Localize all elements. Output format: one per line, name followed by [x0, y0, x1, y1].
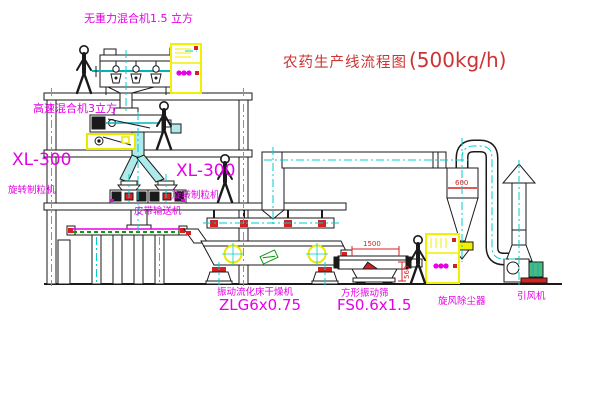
dim-sieve-length: 1500: [363, 241, 381, 248]
control-cabinet-right: [426, 234, 459, 283]
induced-draft-fan: [504, 259, 547, 283]
gravity-free-mixer: [92, 48, 183, 95]
fluid-bed-dryer: [201, 210, 355, 284]
belt-conveyor: [58, 226, 208, 284]
label-granulator-center-model: XL-300: [176, 163, 235, 180]
label-belt-conveyor: 皮带输送机: [134, 207, 182, 217]
label-high-speed-mixer: 高速混合机3立方: [33, 103, 117, 114]
label-cyclone: 旋风除尘器: [438, 297, 486, 307]
title-text: 农药生产线流程图: [283, 51, 407, 72]
label-dryer-model: ZLG6x0.75: [219, 298, 301, 313]
label-fan: 引风机: [517, 292, 546, 302]
label-gravity-free-mixer: 无重力混合机1.5 立方: [84, 13, 193, 24]
diagram-title: 农药生产线流程图 (500kg/h): [283, 48, 506, 72]
label-sieve-model: FS0.6x1.5: [337, 298, 411, 313]
label-granulator-left-model: XL-300: [12, 152, 71, 169]
pesticide-line-flow-diagram: 农药生产线流程图 (500kg/h) 无重力混合机1.5 立方 高速混合机3立方…: [0, 0, 600, 403]
label-granulator-left-name: 旋转制粒机: [8, 186, 56, 196]
dim-cyclone-diameter: 600: [455, 180, 468, 187]
label-granulator-center-name: 旋转制粒机: [172, 191, 220, 201]
worker-figure-1: [77, 46, 91, 93]
title-capacity: (500kg/h): [409, 48, 506, 72]
dim-sieve-outlet-height: 560: [404, 266, 411, 279]
